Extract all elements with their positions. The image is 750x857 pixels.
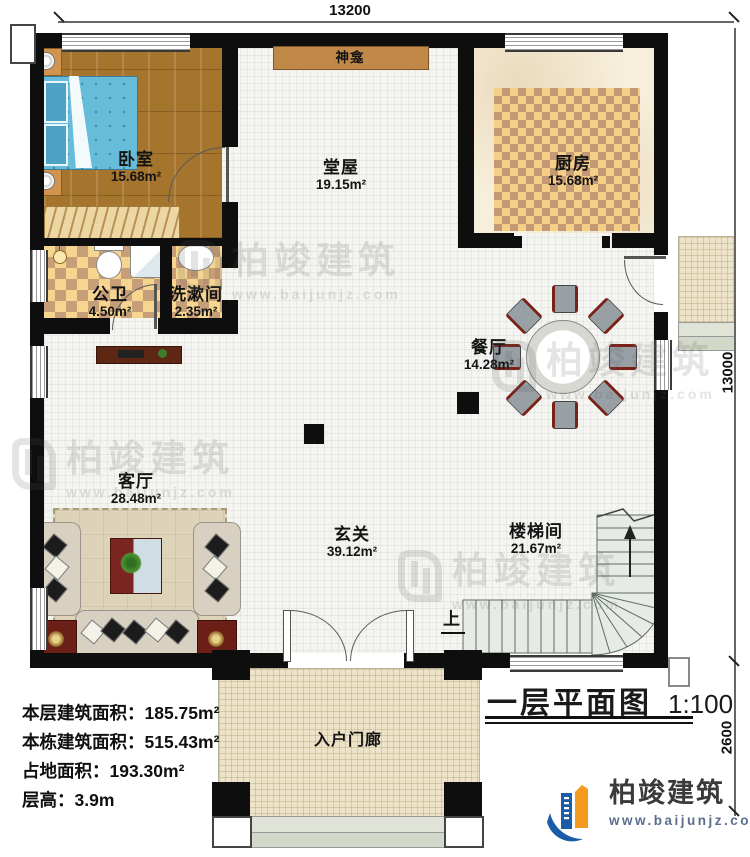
window — [62, 33, 190, 52]
window — [30, 588, 48, 650]
dining-table — [526, 320, 600, 394]
toilet-bowl — [96, 251, 122, 279]
console-plant-icon — [158, 349, 167, 358]
window — [30, 346, 48, 398]
dining-chair — [552, 401, 578, 429]
armchair — [193, 522, 241, 616]
kitchen-door-jamb — [602, 236, 610, 248]
wall — [30, 318, 110, 334]
company-website: www.baijunjz.com — [609, 813, 750, 828]
porch-column — [212, 782, 250, 816]
info-footprint-area: 占地面积：193.30m² — [22, 758, 184, 783]
room-label-stairwell: 楼梯间21.67m² — [509, 523, 563, 557]
porch-step — [250, 832, 446, 848]
wall — [654, 33, 668, 255]
pillow — [44, 124, 68, 166]
room-label-kitchen: 厨房15.68m² — [548, 155, 598, 189]
wall — [458, 233, 514, 248]
wall — [654, 312, 668, 342]
porch-pier — [212, 816, 252, 848]
wall — [222, 246, 238, 268]
wall — [30, 238, 238, 246]
pillow — [44, 81, 68, 123]
room-label-hall: 堂屋19.15m² — [316, 159, 366, 193]
porch-pier — [444, 816, 484, 848]
room-label-dining: 餐厅14.28m² — [464, 339, 514, 373]
dimension-line-top — [58, 21, 734, 23]
side-table-decor-icon — [208, 631, 224, 647]
company-logo: 柏竣建筑 www.baijunjz.com — [541, 780, 750, 842]
console-decor — [118, 350, 144, 358]
wall — [222, 33, 238, 147]
column — [304, 424, 324, 444]
porch-column — [444, 782, 482, 816]
side-steps — [678, 322, 736, 337]
side-door-leaf — [624, 256, 666, 259]
dimension-top-value: 13200 — [300, 2, 400, 19]
wardrobe — [44, 206, 180, 240]
entry-door-panel — [283, 610, 291, 662]
plant-icon — [120, 552, 142, 574]
window — [30, 250, 48, 302]
shrine-label: 神龛 — [336, 49, 365, 67]
wall — [222, 300, 238, 326]
entry-door-panel — [406, 610, 414, 662]
company-name: 柏竣建筑 — [609, 780, 750, 807]
bathroom-door-leaf — [154, 284, 157, 329]
room-label-bedroom: 卧室15.68m² — [111, 151, 161, 185]
wall — [612, 233, 668, 248]
washbasin — [178, 244, 214, 271]
floor-plan-canvas: 神龛 上 — [0, 0, 750, 857]
window — [505, 33, 623, 52]
room-label-living: 客厅28.48m² — [111, 473, 161, 507]
dining-chair — [552, 285, 578, 313]
wall — [623, 653, 668, 668]
bedroom-door-leaf — [226, 147, 229, 202]
info-building-area: 本栋建筑面积：515.43m² — [22, 729, 219, 754]
room-label-bathroom: 公卫4.50m² — [89, 286, 132, 320]
column — [457, 392, 479, 414]
company-logo-icon — [541, 780, 603, 842]
pendant-light-icon — [53, 250, 67, 264]
room-label-washroom: 洗漱间2.35m² — [169, 286, 223, 320]
room-label-foyer: 玄关39.12m² — [327, 526, 377, 560]
wall — [458, 33, 474, 248]
stairs-up-label: 上 — [443, 611, 461, 630]
porch-column — [212, 650, 250, 680]
porch-step — [250, 816, 446, 833]
dining-chair — [609, 344, 637, 370]
dimension-side-value: 13000 — [720, 343, 737, 403]
exterior-pier — [10, 24, 36, 64]
side-table-decor-icon — [48, 631, 64, 647]
porch-column — [444, 650, 482, 680]
info-floor-area: 本层建筑面积：185.75m² — [22, 700, 219, 725]
window — [654, 340, 672, 390]
title-underline — [485, 722, 693, 724]
staircase — [460, 505, 668, 657]
room-label-porch: 入户门廊 — [314, 732, 382, 750]
info-storey-height: 层高：3.9m — [22, 787, 114, 812]
side-landing — [678, 236, 736, 324]
wall — [654, 390, 668, 668]
window — [510, 655, 623, 672]
kitchen-door-jamb — [514, 236, 522, 248]
stairs-up-underline — [441, 632, 465, 634]
title-underline — [485, 716, 693, 719]
